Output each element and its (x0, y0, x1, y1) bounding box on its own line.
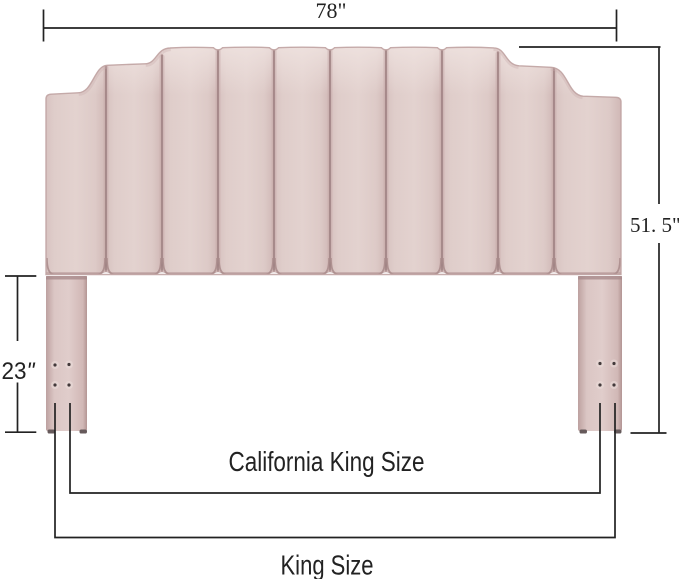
svg-text:78": 78" (316, 0, 347, 23)
svg-text:King Size: King Size (281, 550, 374, 579)
svg-text:California King Size: California King Size (229, 446, 425, 477)
svg-text:23": 23" (2, 358, 36, 385)
svg-text:51. 5": 51. 5" (630, 213, 679, 237)
